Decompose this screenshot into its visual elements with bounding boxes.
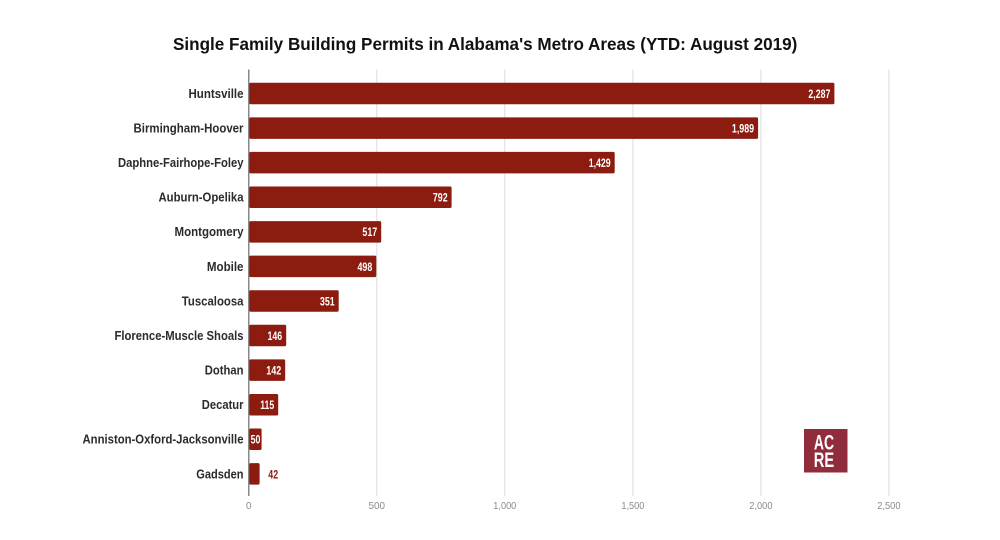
svg-text:Daphne-Fairhope-Foley: Daphne-Fairhope-Foley: [118, 156, 244, 170]
svg-text:Auburn-Opelika: Auburn-Opelika: [159, 191, 245, 205]
svg-text:115: 115: [260, 400, 274, 412]
svg-text:500: 500: [369, 500, 386, 512]
svg-text:Tuscaloosa: Tuscaloosa: [182, 294, 245, 308]
svg-text:2,000: 2,000: [749, 500, 772, 512]
svg-text:Dothan: Dothan: [205, 364, 244, 378]
svg-text:Single Family Building Permits: Single Family Building Permits in Alabam…: [173, 35, 797, 54]
svg-text:792: 792: [433, 193, 448, 205]
svg-text:Decatur: Decatur: [202, 398, 244, 412]
svg-text:1,500: 1,500: [621, 500, 644, 512]
svg-text:50: 50: [251, 435, 261, 447]
svg-text:2,500: 2,500: [877, 500, 900, 512]
svg-text:498: 498: [358, 262, 373, 274]
svg-text:42: 42: [268, 469, 278, 481]
svg-text:146: 146: [268, 331, 283, 343]
svg-text:1,429: 1,429: [589, 158, 611, 170]
svg-text:0: 0: [246, 500, 252, 512]
svg-text:Anniston-Oxford-Jacksonville: Anniston-Oxford-Jacksonville: [83, 433, 244, 447]
svg-text:Florence-Muscle Shoals: Florence-Muscle Shoals: [115, 329, 244, 343]
svg-text:Montgomery: Montgomery: [175, 225, 244, 239]
svg-text:2,287: 2,287: [808, 89, 830, 101]
svg-text:142: 142: [266, 366, 281, 378]
svg-text:Birmingham-Hoover: Birmingham-Hoover: [134, 122, 244, 136]
svg-text:351: 351: [320, 296, 335, 308]
svg-text:517: 517: [362, 227, 377, 239]
svg-text:Gadsden: Gadsden: [196, 467, 243, 481]
svg-text:1,989: 1,989: [732, 124, 754, 136]
svg-text:Mobile: Mobile: [207, 260, 244, 274]
svg-text:RE: RE: [814, 448, 834, 472]
svg-text:Huntsville: Huntsville: [189, 87, 244, 101]
svg-text:1,000: 1,000: [493, 500, 516, 512]
